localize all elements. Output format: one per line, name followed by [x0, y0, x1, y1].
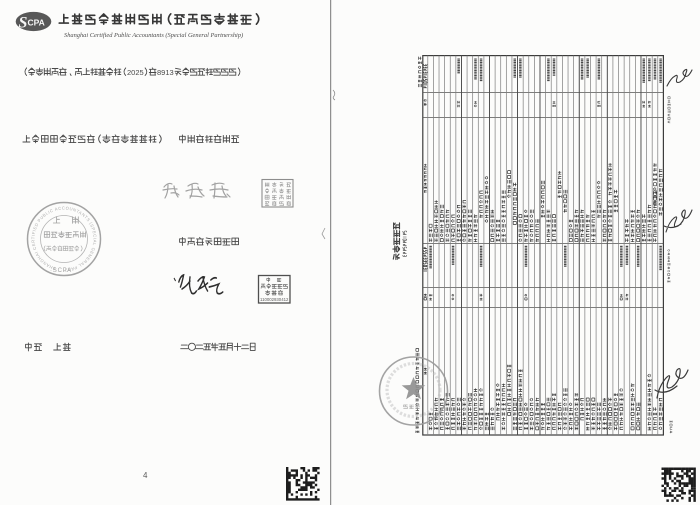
svg-text:Shanghai Certified Public Acco: Shanghai Certified Public Accountants (S… [64, 32, 243, 39]
svg-text:·SCPA·: ·SCPA· [50, 268, 75, 274]
svg-text:CPA: CPA [28, 18, 45, 28]
svg-text:8913: 8913 [157, 68, 174, 77]
svg-text:110002930412: 110002930412 [260, 297, 289, 302]
svg-text:4: 4 [143, 471, 148, 480]
svg-text:S: S [19, 15, 28, 32]
svg-text:2025: 2025 [127, 68, 144, 77]
